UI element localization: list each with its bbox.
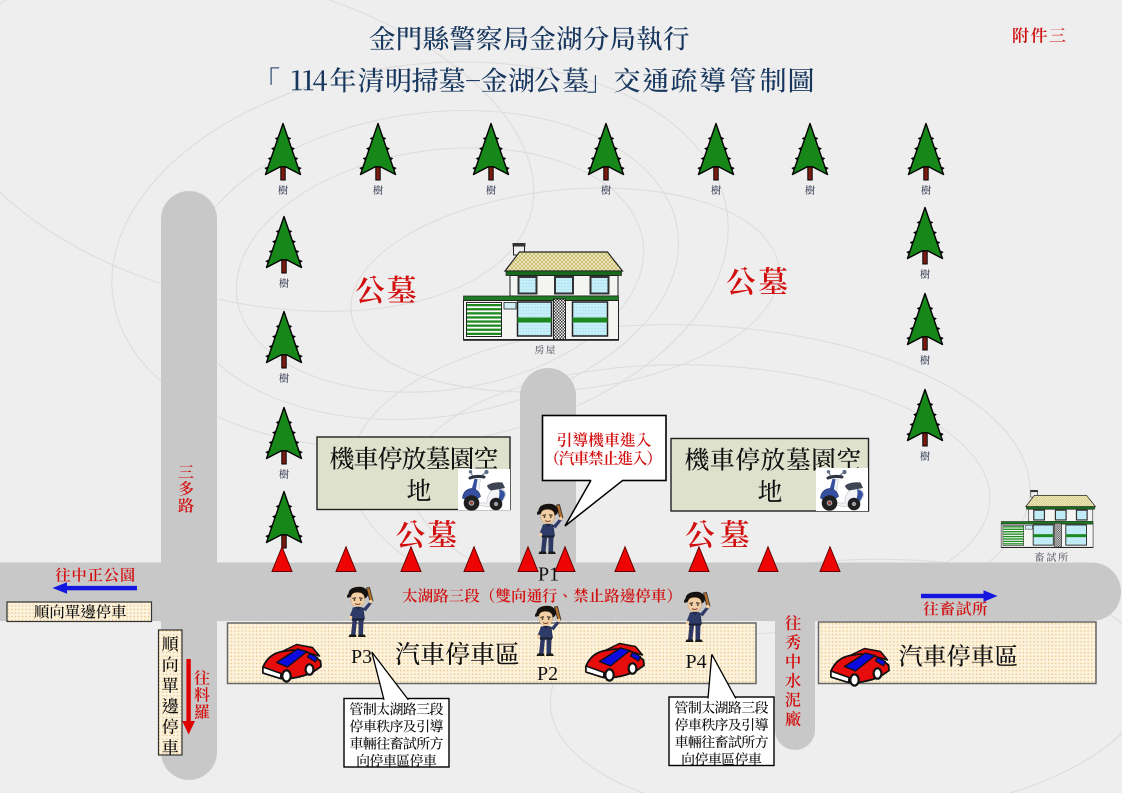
svg-text:P3: P3 xyxy=(351,646,372,668)
svg-text:P1: P1 xyxy=(538,564,559,586)
svg-text:P2: P2 xyxy=(537,663,558,685)
svg-text:P4: P4 xyxy=(686,651,707,673)
